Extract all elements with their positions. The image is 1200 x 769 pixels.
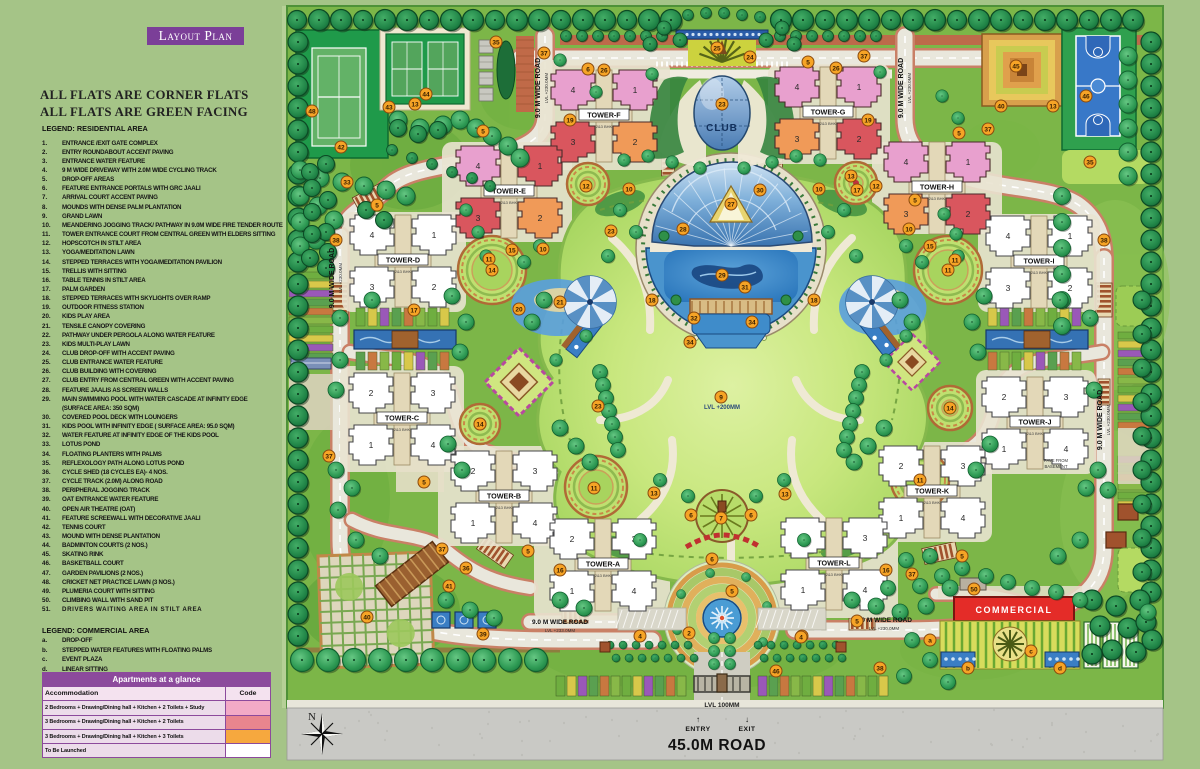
svg-text:41: 41	[445, 583, 453, 590]
svg-text:17: 17	[853, 187, 861, 194]
svg-text:ENTRY: ENTRY	[685, 726, 710, 733]
svg-text:32: 32	[690, 315, 698, 322]
svg-text:5: 5	[806, 59, 810, 66]
svg-text:23: 23	[594, 403, 602, 410]
svg-text:9: 9	[719, 394, 723, 401]
svg-text:5: 5	[526, 548, 530, 555]
svg-text:TOWER-F: TOWER-F	[587, 111, 621, 120]
svg-text:(2&3 BHK): (2&3 BHK)	[818, 121, 838, 126]
svg-text:2: 2	[899, 461, 904, 471]
svg-text:BASEMENT: BASEMENT	[1044, 464, 1067, 469]
svg-text:23: 23	[607, 228, 615, 235]
svg-text:11: 11	[952, 257, 959, 264]
svg-text:4: 4	[533, 518, 538, 528]
svg-text:37: 37	[984, 126, 992, 133]
svg-text:37: 37	[438, 546, 446, 553]
svg-text:45: 45	[1012, 63, 1020, 70]
svg-text:1: 1	[1068, 231, 1073, 241]
svg-text:19: 19	[566, 117, 574, 124]
svg-text:15: 15	[926, 243, 934, 250]
svg-text:50: 50	[970, 586, 978, 593]
svg-text:10: 10	[905, 226, 913, 233]
svg-text:5: 5	[730, 588, 734, 595]
svg-text:30: 30	[756, 187, 764, 194]
svg-text:TOWER-I: TOWER-I	[1023, 257, 1054, 266]
svg-text:13: 13	[1049, 103, 1057, 110]
svg-text:45.0M ROAD: 45.0M ROAD	[668, 737, 766, 754]
svg-text:9.0 M WIDE ROAD: 9.0 M WIDE ROAD	[1097, 390, 1104, 450]
svg-text:1: 1	[801, 585, 806, 595]
svg-text:TOWER-E: TOWER-E	[492, 187, 526, 196]
svg-text:1: 1	[369, 440, 374, 450]
svg-text:PAVE FROM: PAVE FROM	[1044, 458, 1069, 463]
svg-text:27: 27	[727, 201, 735, 208]
svg-text:COMMERCIAL: COMMERCIAL	[976, 605, 1053, 615]
svg-text:1: 1	[471, 518, 476, 528]
svg-text:14: 14	[946, 405, 954, 412]
svg-text:4: 4	[795, 82, 800, 92]
svg-text:4: 4	[1064, 444, 1069, 454]
svg-text:c: c	[1029, 648, 1033, 655]
svg-text:6: 6	[689, 512, 693, 519]
svg-text:4: 4	[961, 513, 966, 523]
svg-text:3: 3	[571, 137, 576, 147]
svg-text:1: 1	[570, 586, 575, 596]
svg-text:24: 24	[746, 54, 754, 61]
svg-text:2: 2	[633, 137, 638, 147]
svg-text:TOWER-C: TOWER-C	[385, 414, 419, 423]
svg-text:36: 36	[462, 565, 470, 572]
svg-text:28: 28	[679, 226, 687, 233]
svg-text:9.0 M WIDE ROAD: 9.0 M WIDE ROAD	[898, 58, 905, 118]
svg-text:29: 29	[718, 272, 726, 279]
svg-text:21: 21	[556, 299, 564, 306]
svg-text:TOWER-A: TOWER-A	[586, 560, 620, 569]
svg-text:14: 14	[488, 267, 496, 274]
svg-text:18: 18	[648, 297, 656, 304]
svg-text:35: 35	[492, 39, 500, 46]
svg-text:5: 5	[481, 128, 485, 135]
svg-text:5: 5	[957, 130, 961, 137]
svg-text:↑: ↑	[696, 715, 700, 724]
svg-text:4: 4	[571, 85, 576, 95]
svg-text:2: 2	[432, 282, 437, 292]
svg-text:(2&3 BHK): (2&3 BHK)	[922, 500, 942, 505]
svg-text:42: 42	[337, 144, 345, 151]
svg-text:N: N	[308, 711, 316, 723]
svg-text:TOWER-D: TOWER-D	[386, 256, 420, 265]
svg-text:4: 4	[1006, 231, 1011, 241]
svg-text:TOWER-H: TOWER-H	[920, 183, 954, 192]
svg-text:TOWER-L: TOWER-L	[817, 559, 851, 568]
svg-text:3: 3	[795, 134, 800, 144]
svg-text:37: 37	[908, 571, 916, 578]
svg-text:3: 3	[370, 282, 375, 292]
svg-text:12: 12	[872, 183, 880, 190]
svg-text:1: 1	[538, 161, 543, 171]
svg-text:26: 26	[832, 65, 840, 72]
svg-text:d: d	[1058, 665, 1062, 672]
svg-text:46: 46	[1082, 93, 1090, 100]
svg-text:38: 38	[876, 665, 884, 672]
svg-text:2: 2	[538, 213, 543, 223]
svg-text:38: 38	[332, 237, 340, 244]
svg-text:2: 2	[1002, 392, 1007, 402]
svg-text:18: 18	[810, 297, 818, 304]
svg-text:9.0 M WIDE ROAD: 9.0 M WIDE ROAD	[532, 619, 588, 626]
svg-text:9.0 M WIDE ROAD: 9.0 M WIDE ROAD	[329, 248, 336, 308]
svg-text:3: 3	[533, 466, 538, 476]
svg-text:4: 4	[632, 586, 637, 596]
svg-text:3: 3	[1006, 283, 1011, 293]
svg-text:4: 4	[431, 440, 436, 450]
svg-text:5: 5	[960, 553, 964, 560]
svg-text:6: 6	[586, 66, 590, 73]
svg-text:1: 1	[432, 230, 437, 240]
svg-text:13: 13	[781, 491, 789, 498]
svg-text:7: 7	[719, 515, 723, 522]
svg-text:48: 48	[308, 108, 316, 115]
svg-text:3: 3	[431, 388, 436, 398]
svg-text:34: 34	[748, 319, 756, 326]
svg-text:25: 25	[713, 45, 721, 52]
svg-text:9.0 M WIDE ROAD: 9.0 M WIDE ROAD	[535, 58, 542, 118]
svg-text:6: 6	[710, 556, 714, 563]
svg-text:2: 2	[471, 466, 476, 476]
svg-text:3: 3	[904, 209, 909, 219]
svg-text:2: 2	[1068, 283, 1073, 293]
svg-text:43: 43	[385, 104, 393, 111]
svg-text:(2&3 BHK): (2&3 BHK)	[499, 200, 519, 205]
svg-text:38: 38	[1100, 237, 1108, 244]
svg-text:37: 37	[540, 50, 548, 57]
svg-text:LVL +230.0MM: LVL +230.0MM	[869, 626, 899, 631]
svg-text:40: 40	[363, 614, 371, 621]
svg-text:2: 2	[369, 388, 374, 398]
svg-text:(2&3 BHK): (2&3 BHK)	[1025, 431, 1045, 436]
svg-text:13: 13	[411, 101, 419, 108]
svg-text:35: 35	[1086, 159, 1094, 166]
svg-text:3: 3	[1064, 392, 1069, 402]
svg-text:9.0 M WIDE ROAD: 9.0 M WIDE ROAD	[856, 617, 912, 624]
svg-text:(2&3 BHK): (2&3 BHK)	[494, 505, 514, 510]
svg-text:11: 11	[591, 485, 598, 492]
svg-text:3: 3	[476, 213, 481, 223]
svg-text:34: 34	[686, 339, 694, 346]
svg-text:6: 6	[749, 512, 753, 519]
svg-text:19: 19	[864, 117, 872, 124]
svg-text:TOWER-G: TOWER-G	[811, 108, 846, 117]
svg-text:10: 10	[539, 246, 547, 253]
svg-text:1: 1	[633, 85, 638, 95]
svg-text:(2&3 BHK): (2&3 BHK)	[392, 427, 412, 432]
svg-text:LVL +230.0MM: LVL +230.0MM	[1106, 405, 1111, 435]
svg-text:5: 5	[913, 197, 917, 204]
svg-text:26: 26	[600, 67, 608, 74]
svg-text:11: 11	[945, 267, 952, 274]
svg-text:16: 16	[556, 567, 564, 574]
svg-text:4: 4	[904, 157, 909, 167]
svg-text:4: 4	[370, 230, 375, 240]
svg-text:13: 13	[847, 173, 855, 180]
svg-text:15: 15	[508, 247, 516, 254]
svg-text:2: 2	[570, 534, 575, 544]
svg-text:TOWER-B: TOWER-B	[487, 492, 521, 501]
svg-text:23: 23	[718, 101, 726, 108]
svg-text:EXIT: EXIT	[738, 726, 755, 733]
svg-text:CLUB: CLUB	[706, 123, 738, 134]
svg-text:10: 10	[625, 186, 633, 193]
svg-text:2: 2	[966, 209, 971, 219]
svg-text:1: 1	[899, 513, 904, 523]
svg-text:2: 2	[687, 630, 691, 637]
svg-text:40: 40	[997, 103, 1005, 110]
svg-text:11: 11	[486, 256, 493, 263]
svg-text:17: 17	[410, 307, 418, 314]
svg-text:4: 4	[799, 634, 803, 641]
svg-text:↓: ↓	[745, 715, 749, 724]
svg-text:LVL +230.0MM: LVL +230.0MM	[338, 263, 343, 293]
svg-text:3: 3	[863, 533, 868, 543]
svg-text:(2&3 BHK): (2&3 BHK)	[594, 124, 614, 129]
svg-text:b: b	[966, 665, 970, 672]
svg-text:LVL 100MM: LVL 100MM	[704, 702, 739, 709]
svg-text:TOWER-K: TOWER-K	[915, 487, 950, 496]
svg-text:LVL +233.0MM: LVL +233.0MM	[545, 628, 575, 633]
svg-text:39: 39	[479, 631, 487, 638]
svg-text:37: 37	[860, 53, 868, 60]
svg-text:4: 4	[863, 585, 868, 595]
svg-text:11: 11	[917, 477, 924, 484]
svg-text:1: 1	[966, 157, 971, 167]
svg-text:44: 44	[422, 91, 430, 98]
svg-text:14: 14	[476, 421, 484, 428]
svg-text:LVL +230.0MM: LVL +230.0MM	[544, 73, 549, 103]
svg-text:(2&3 BHK): (2&3 BHK)	[824, 572, 844, 577]
svg-text:4: 4	[638, 633, 642, 640]
svg-text:TOWER-J: TOWER-J	[1018, 418, 1051, 427]
svg-text:33: 33	[343, 179, 351, 186]
svg-text:31: 31	[741, 284, 749, 291]
svg-text:1: 1	[857, 82, 862, 92]
svg-text:4: 4	[476, 161, 481, 171]
svg-text:a: a	[928, 637, 932, 644]
svg-text:13: 13	[650, 490, 658, 497]
svg-text:16: 16	[882, 567, 890, 574]
svg-text:5: 5	[375, 202, 379, 209]
svg-text:5: 5	[855, 618, 859, 625]
svg-text:3: 3	[961, 461, 966, 471]
svg-text:5: 5	[422, 479, 426, 486]
svg-text:10: 10	[815, 186, 823, 193]
svg-text:1: 1	[1002, 444, 1007, 454]
svg-text:46: 46	[772, 668, 780, 675]
svg-text:(2&3 BHK): (2&3 BHK)	[927, 196, 947, 201]
svg-text:LVL +230.0MM: LVL +230.0MM	[907, 73, 912, 103]
svg-text:(2&3 BHK): (2&3 BHK)	[593, 573, 613, 578]
svg-text:(2&3 BHK): (2&3 BHK)	[1029, 270, 1049, 275]
svg-text:LVL +200MM: LVL +200MM	[704, 405, 740, 411]
svg-text:(2&3 BHK): (2&3 BHK)	[393, 269, 413, 274]
svg-text:12: 12	[582, 183, 590, 190]
svg-text:20: 20	[515, 306, 523, 313]
svg-text:2: 2	[857, 134, 862, 144]
svg-text:37: 37	[325, 453, 333, 460]
